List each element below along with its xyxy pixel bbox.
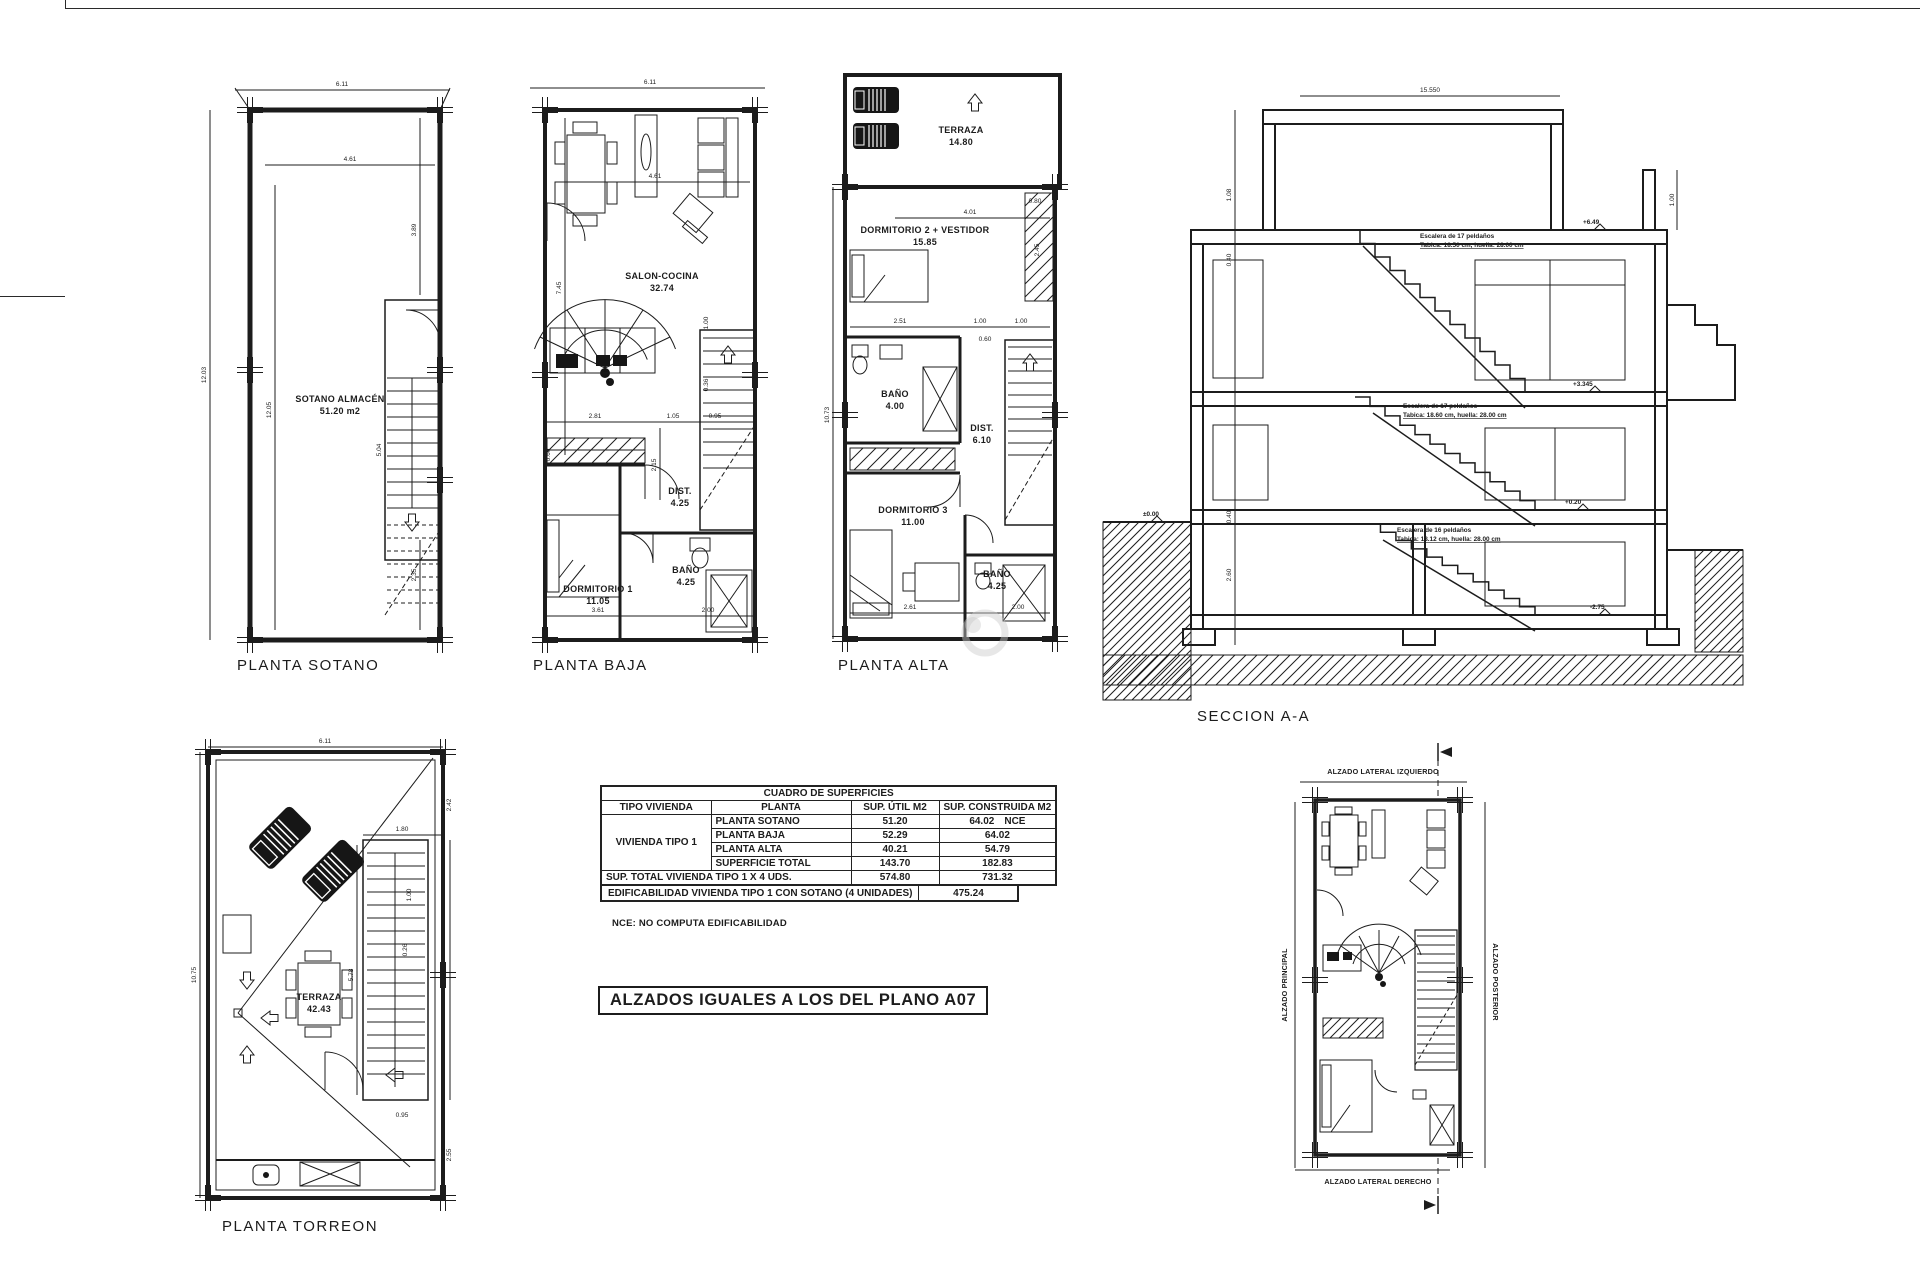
dim-label: 15.550	[1420, 87, 1440, 94]
dim-label: 5.04	[376, 443, 383, 456]
svg-text:Escalera de 17 peldaños: Escalera de 17 peldaños	[1420, 233, 1495, 240]
torreon-wall-box	[223, 915, 251, 953]
alzado-label-left: ALZADO PRINCIPAL	[1280, 948, 1289, 1022]
svg-text:4.25: 4.25	[988, 581, 1007, 591]
sotano-room-label: SOTANO ALMACÉN 51.20 m2	[295, 394, 384, 416]
baja-kitchen-cabinets	[550, 328, 655, 373]
stair-treads	[367, 853, 425, 1074]
svg-text:Escalera de 17 peldaños: Escalera de 17 peldaños	[1403, 403, 1478, 410]
grid-markers	[1302, 787, 1473, 1168]
cell-total-label: SUP. TOTAL VIVIENDA TIPO 1 X 4 UDS.	[601, 871, 851, 886]
alta-stairs	[1005, 340, 1055, 525]
cell-construida: 64.02	[939, 829, 1056, 843]
dim-label: 0.36	[703, 378, 710, 391]
svg-text:SOTANO ALMACÉN: SOTANO ALMACÉN	[295, 394, 384, 404]
dim-label: 2.81	[589, 413, 602, 420]
svg-text:Tabica: 18.60 cm, huella: 28.0: Tabica: 18.60 cm, huella: 28.00 cm	[1403, 412, 1507, 419]
dim-label: 6.11	[644, 79, 657, 86]
stair-treads	[387, 378, 440, 508]
alta-room-label-bano2: BAÑO 4.25	[983, 569, 1011, 591]
dim-label: 1.80	[396, 826, 409, 833]
baja-sofa	[673, 118, 738, 243]
dim-label: 1.00	[1669, 193, 1676, 206]
alta-dorm3-door	[928, 475, 960, 507]
baja-counter	[635, 115, 657, 197]
col-header-planta: PLANTA	[711, 801, 851, 815]
north-arrow-icon	[968, 94, 982, 111]
torreon-bottom-strip	[216, 1160, 435, 1186]
alta-room-label-bano1: BAÑO 4.00	[881, 389, 909, 411]
dim-label: 2.42	[446, 798, 453, 811]
dim-label: 1.00	[703, 316, 710, 329]
svg-text:TERRAZA: TERRAZA	[938, 125, 983, 135]
baja-room-label-salon: SALON-COCINA 32.74	[625, 271, 699, 293]
svg-text:42.43: 42.43	[307, 1004, 331, 1014]
dim-label: 4.61	[344, 156, 357, 163]
dim-label: 2.60	[1226, 568, 1233, 581]
cell-construida: 54.79	[939, 843, 1056, 857]
alta-room-label-dist: DIST. 6.10	[970, 423, 994, 445]
baja-dining-table	[555, 122, 617, 226]
cell-value: 64.02	[969, 816, 994, 827]
sun-lounger	[300, 838, 366, 904]
col-header-construida: SUP. CONSTRUIDA M2	[939, 801, 1056, 815]
dim-label: 0.40	[1226, 510, 1233, 523]
dim-label: 1.05	[667, 413, 680, 420]
seccion-top-dim: 15.550	[1300, 87, 1560, 96]
edificabilidad-value: 475.24	[919, 885, 1019, 901]
svg-text:DIST.: DIST.	[668, 486, 692, 496]
alta-room-label-terraza: TERRAZA 14.80	[938, 125, 983, 147]
cell-planta: PLANTA ALTA	[711, 843, 851, 857]
svg-text:DIST.: DIST.	[970, 423, 994, 433]
baja-stairs	[700, 330, 755, 530]
svg-text:DORMITORIO 3: DORMITORIO 3	[878, 505, 947, 515]
stair-treads	[1417, 936, 1455, 1062]
alta-bed2	[850, 250, 928, 302]
stair-treads	[703, 338, 753, 468]
grid-markers	[237, 97, 453, 653]
sheet-border-corner	[65, 0, 66, 9]
dim-label: 12.05	[266, 401, 273, 418]
alta-bath1	[852, 345, 957, 431]
dim-label: 6.11	[336, 81, 349, 88]
dim-label: 2.35	[411, 568, 418, 581]
svg-text:4.25: 4.25	[677, 577, 696, 587]
sotano-stairs	[385, 300, 440, 615]
baja-room-label-dorm1: DORMITORIO 1 11.05	[563, 584, 632, 606]
dim-label: 7.45	[556, 281, 563, 294]
ground-hatch-right	[1695, 550, 1743, 652]
alzado-label-top: ALZADO LATERAL IZQUIERDO	[1327, 767, 1439, 776]
svg-text:DORMITORIO 2 + VESTIDOR: DORMITORIO 2 + VESTIDOR	[860, 225, 989, 235]
dim-label: 1.00	[406, 888, 413, 901]
sheet-border-top	[65, 8, 1920, 9]
dim-label: 2.55	[446, 1148, 453, 1161]
cell-total-construida: 731.32	[939, 871, 1056, 886]
sun-lounger	[247, 805, 313, 871]
dim-label: 10.73	[824, 406, 831, 423]
svg-text:BAÑO: BAÑO	[672, 565, 700, 575]
grid-markers	[195, 739, 456, 1211]
section-cut-mark-top	[1438, 743, 1452, 761]
plan-torreon: 6.11 10.75 2.42 1.80 1.00 0.26 5.08 0.95…	[195, 735, 505, 1255]
alzado-label-right: ALZADO POSTERIOR	[1491, 943, 1500, 1021]
watermark	[965, 613, 1005, 653]
dim-label: 2.61	[904, 604, 917, 611]
baja-interior-walls	[545, 465, 755, 640]
alta-room-label-dorm2: DORMITORIO 2 + VESTIDOR 15.85	[860, 225, 989, 247]
cell-util: 40.21	[851, 843, 939, 857]
stair-treads	[1008, 347, 1052, 455]
dim-label: 2.15	[651, 458, 658, 471]
svg-text:BAÑO: BAÑO	[983, 569, 1011, 579]
cell-util: 143.70	[851, 857, 939, 871]
sheet-margin-tick	[0, 296, 65, 297]
edificabilidad-label: EDIFICABILIDAD VIVIENDA TIPO 1 CON SOTAN…	[601, 885, 919, 901]
cell-tipo-vivienda: VIVIENDA TIPO 1	[601, 815, 711, 871]
svg-text:11.00: 11.00	[901, 517, 925, 527]
seccion-interior-fittings	[1213, 260, 1625, 606]
dim-label: 4.61	[649, 173, 662, 180]
baja-room-label-bano: BAÑO 4.25	[672, 565, 700, 587]
cell-planta: PLANTA SOTANO	[711, 815, 851, 829]
sotano-dimensions: 6.11 4.61 12.03 12.05 3.89 5.04 2.35	[201, 81, 450, 640]
svg-text:SALON-COCINA: SALON-COCINA	[625, 271, 699, 281]
col-header-tipo: TIPO VIVIENDA	[601, 801, 711, 815]
svg-text:32.74: 32.74	[650, 283, 674, 293]
svg-text:Tabica: 18.50 cm, huella: 28.0: Tabica: 18.50 cm, huella: 28.00 cm	[1420, 242, 1524, 249]
table-total-row: SUP. TOTAL VIVIENDA TIPO 1 X 4 UDS. 574.…	[601, 871, 1056, 886]
keyplan-furniture	[1317, 807, 1457, 1145]
plan-alta: TERRAZA 14.80 10.73 4.01 2.51 1.00 1.00 …	[825, 45, 1085, 685]
cell-nota: NCE	[1004, 816, 1025, 827]
baja-entry-door	[547, 203, 585, 241]
cell-planta: PLANTA BAJA	[711, 829, 851, 843]
alta-wardrobe2-hatch	[850, 448, 955, 470]
dim-label: 4.01	[964, 209, 977, 216]
plan-sotano: 6.11 4.61 12.03 12.05 3.89 5.04 2.35 SOT…	[190, 70, 470, 690]
seccion-structure	[1183, 110, 1735, 645]
sun-lounger	[853, 123, 899, 149]
plan-title-torreon: PLANTA TORREON	[222, 1218, 378, 1235]
dim-label: 6.11	[319, 738, 332, 745]
dim-label: 1.00	[974, 318, 987, 325]
plan-title-sotano: PLANTA SOTANO	[237, 657, 379, 674]
dim-label: 0.40	[1226, 253, 1233, 266]
dim-label: 12.03	[201, 366, 208, 383]
ground-hatch-bottom	[1103, 655, 1743, 685]
torreon-room-label: TERRAZA 42.43	[296, 992, 341, 1014]
section-cut-mark-bottom	[1424, 1196, 1438, 1214]
edificabilidad-table: EDIFICABILIDAD VIVIENDA TIPO 1 CON SOTAN…	[600, 884, 1019, 902]
keyplan-shelf-hatch	[1323, 1018, 1383, 1038]
dim-label: 1.00	[1015, 318, 1028, 325]
drawing-sheet: 6.11 4.61 12.03 12.05 3.89 5.04 2.35 SOT…	[0, 0, 1920, 1280]
torreon-parapet	[216, 760, 435, 1190]
svg-text:51.20 m2: 51.20 m2	[320, 406, 360, 416]
svg-text:6.10: 6.10	[973, 435, 992, 445]
svg-text:DORMITORIO 1: DORMITORIO 1	[563, 584, 632, 594]
section-aa: 15.550	[1095, 70, 1775, 720]
cell-util: 52.29	[851, 829, 939, 843]
svg-text:Escalera de 16 peldaños: Escalera de 16 peldaños	[1397, 527, 1472, 534]
svg-text:+3.345: +3.345	[1573, 381, 1593, 388]
areas-table-title: CUADRO DE SUPERFICIES	[601, 786, 1056, 801]
cell-construida: 64.02NCE	[939, 815, 1056, 829]
alta-outer-wall	[845, 187, 1055, 639]
dim-label: 2.51	[894, 318, 907, 325]
alta-room-label-dorm3: DORMITORIO 3 11.00	[878, 505, 947, 527]
alzados-note-box: ALZADOS IGUALES A LOS DEL PLANO A07	[598, 986, 988, 1015]
dim-label: 3.89	[411, 223, 418, 236]
plan-title-baja: PLANTA BAJA	[533, 657, 648, 674]
dim-label: 0.60	[979, 336, 992, 343]
svg-text:11.05: 11.05	[586, 596, 610, 606]
nce-note: NCE: NO COMPUTA EDIFICABILIDAD	[612, 918, 787, 929]
dim-label: 0.26	[402, 943, 409, 956]
svg-text:4.25: 4.25	[671, 498, 690, 508]
alta-bed3	[850, 530, 892, 618]
svg-text:+0.20: +0.20	[1565, 499, 1582, 506]
grid-markers	[832, 174, 1068, 652]
cell-total-util: 574.80	[851, 871, 939, 886]
svg-text:15.85: 15.85	[913, 237, 937, 247]
col-header-util: SUP. ÚTIL M2	[851, 801, 939, 815]
svg-text:-2.75: -2.75	[1590, 604, 1605, 611]
dim-label: 2.00	[702, 607, 715, 614]
baja-room-label-dist: DIST. 4.25	[668, 486, 692, 508]
cell-planta: SUPERFICIE TOTAL	[711, 857, 851, 871]
areas-table: CUADRO DE SUPERFICIES TIPO VIVIENDA PLAN…	[600, 785, 1057, 886]
plan-baja: 6.11 4.61 7.45 2.81 1.05 0.95 2.15 0.60 …	[510, 70, 780, 690]
alzado-label-bottom: ALZADO LATERAL DERECHO	[1324, 1177, 1431, 1186]
stair-treads-dashed	[387, 525, 440, 603]
svg-text:TERRAZA: TERRAZA	[296, 992, 341, 1002]
svg-text:±0.00: ±0.00	[1143, 511, 1159, 518]
cell-util: 51.20	[851, 815, 939, 829]
seccion-stairs	[1345, 230, 1535, 631]
svg-text:14.80: 14.80	[949, 137, 973, 147]
dim-label: 10.75	[191, 966, 198, 983]
table-row: VIVIENDA TIPO 1 PLANTA SOTANO 51.20 64.0…	[601, 815, 1056, 829]
plan-title-seccion: SECCION A-A	[1197, 708, 1310, 725]
plan-title-alta: PLANTA ALTA	[838, 657, 950, 674]
baja-wardrobe	[547, 438, 645, 463]
dim-label: 3.61	[592, 607, 605, 614]
dim-label: 0.95	[396, 1112, 409, 1119]
svg-text:Tabica: 18.12 cm, huella: 28.0: Tabica: 18.12 cm, huella: 28.00 cm	[1397, 536, 1501, 543]
torreon-dimensions: 6.11 10.75 2.42 1.80 1.00 0.26 5.08 0.95…	[191, 738, 453, 1198]
dim-label: 1.08	[1226, 188, 1233, 201]
cell-construida: 182.83	[939, 857, 1056, 871]
keyplan-outer-wall	[1315, 800, 1460, 1155]
svg-text:4.00: 4.00	[886, 401, 905, 411]
stair-flight-top	[1345, 230, 1525, 408]
alta-desk	[903, 563, 959, 601]
keyplan: ALZADO LATERAL IZQUIERDO ALZADO PRINCIPA…	[1275, 740, 1505, 1220]
svg-text:BAÑO: BAÑO	[881, 389, 909, 399]
svg-text:+6.49: +6.49	[1583, 219, 1600, 226]
sun-lounger	[853, 87, 899, 113]
ground-hatch-left	[1103, 522, 1191, 700]
